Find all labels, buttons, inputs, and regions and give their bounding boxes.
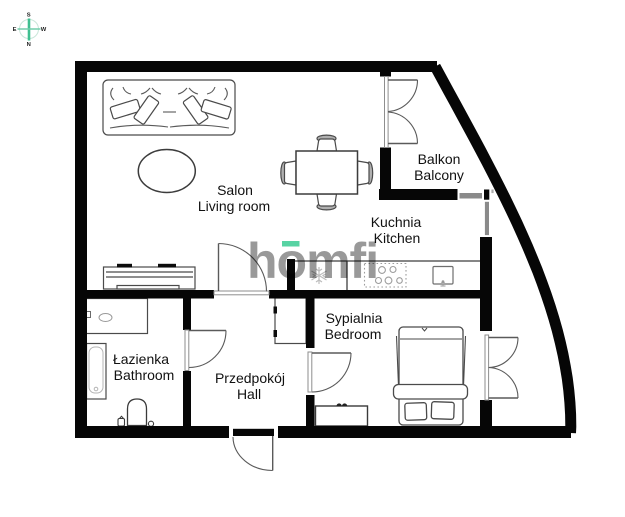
svg-text:W: W — [41, 27, 47, 33]
svg-text:Hall: Hall — [237, 386, 261, 402]
svg-text:S: S — [27, 13, 31, 19]
svg-text:Łazienka: Łazienka — [113, 351, 169, 367]
svg-text:Kitchen: Kitchen — [374, 230, 421, 246]
svg-text:E: E — [13, 27, 17, 33]
svg-text:Sypialnia: Sypialnia — [326, 310, 383, 326]
svg-text:Balkon: Balkon — [418, 151, 461, 167]
svg-text:Living room: Living room — [198, 198, 270, 214]
svg-text:Kuchnia: Kuchnia — [371, 214, 422, 230]
svg-text:Salon: Salon — [217, 182, 253, 198]
svg-text:N: N — [27, 42, 31, 48]
svg-text:Bathroom: Bathroom — [114, 367, 175, 383]
svg-text:Przedpokój: Przedpokój — [215, 370, 285, 386]
svg-text:homfi: homfi — [247, 233, 378, 289]
svg-text:Bedroom: Bedroom — [325, 326, 382, 342]
svg-text:Balcony: Balcony — [414, 167, 464, 183]
